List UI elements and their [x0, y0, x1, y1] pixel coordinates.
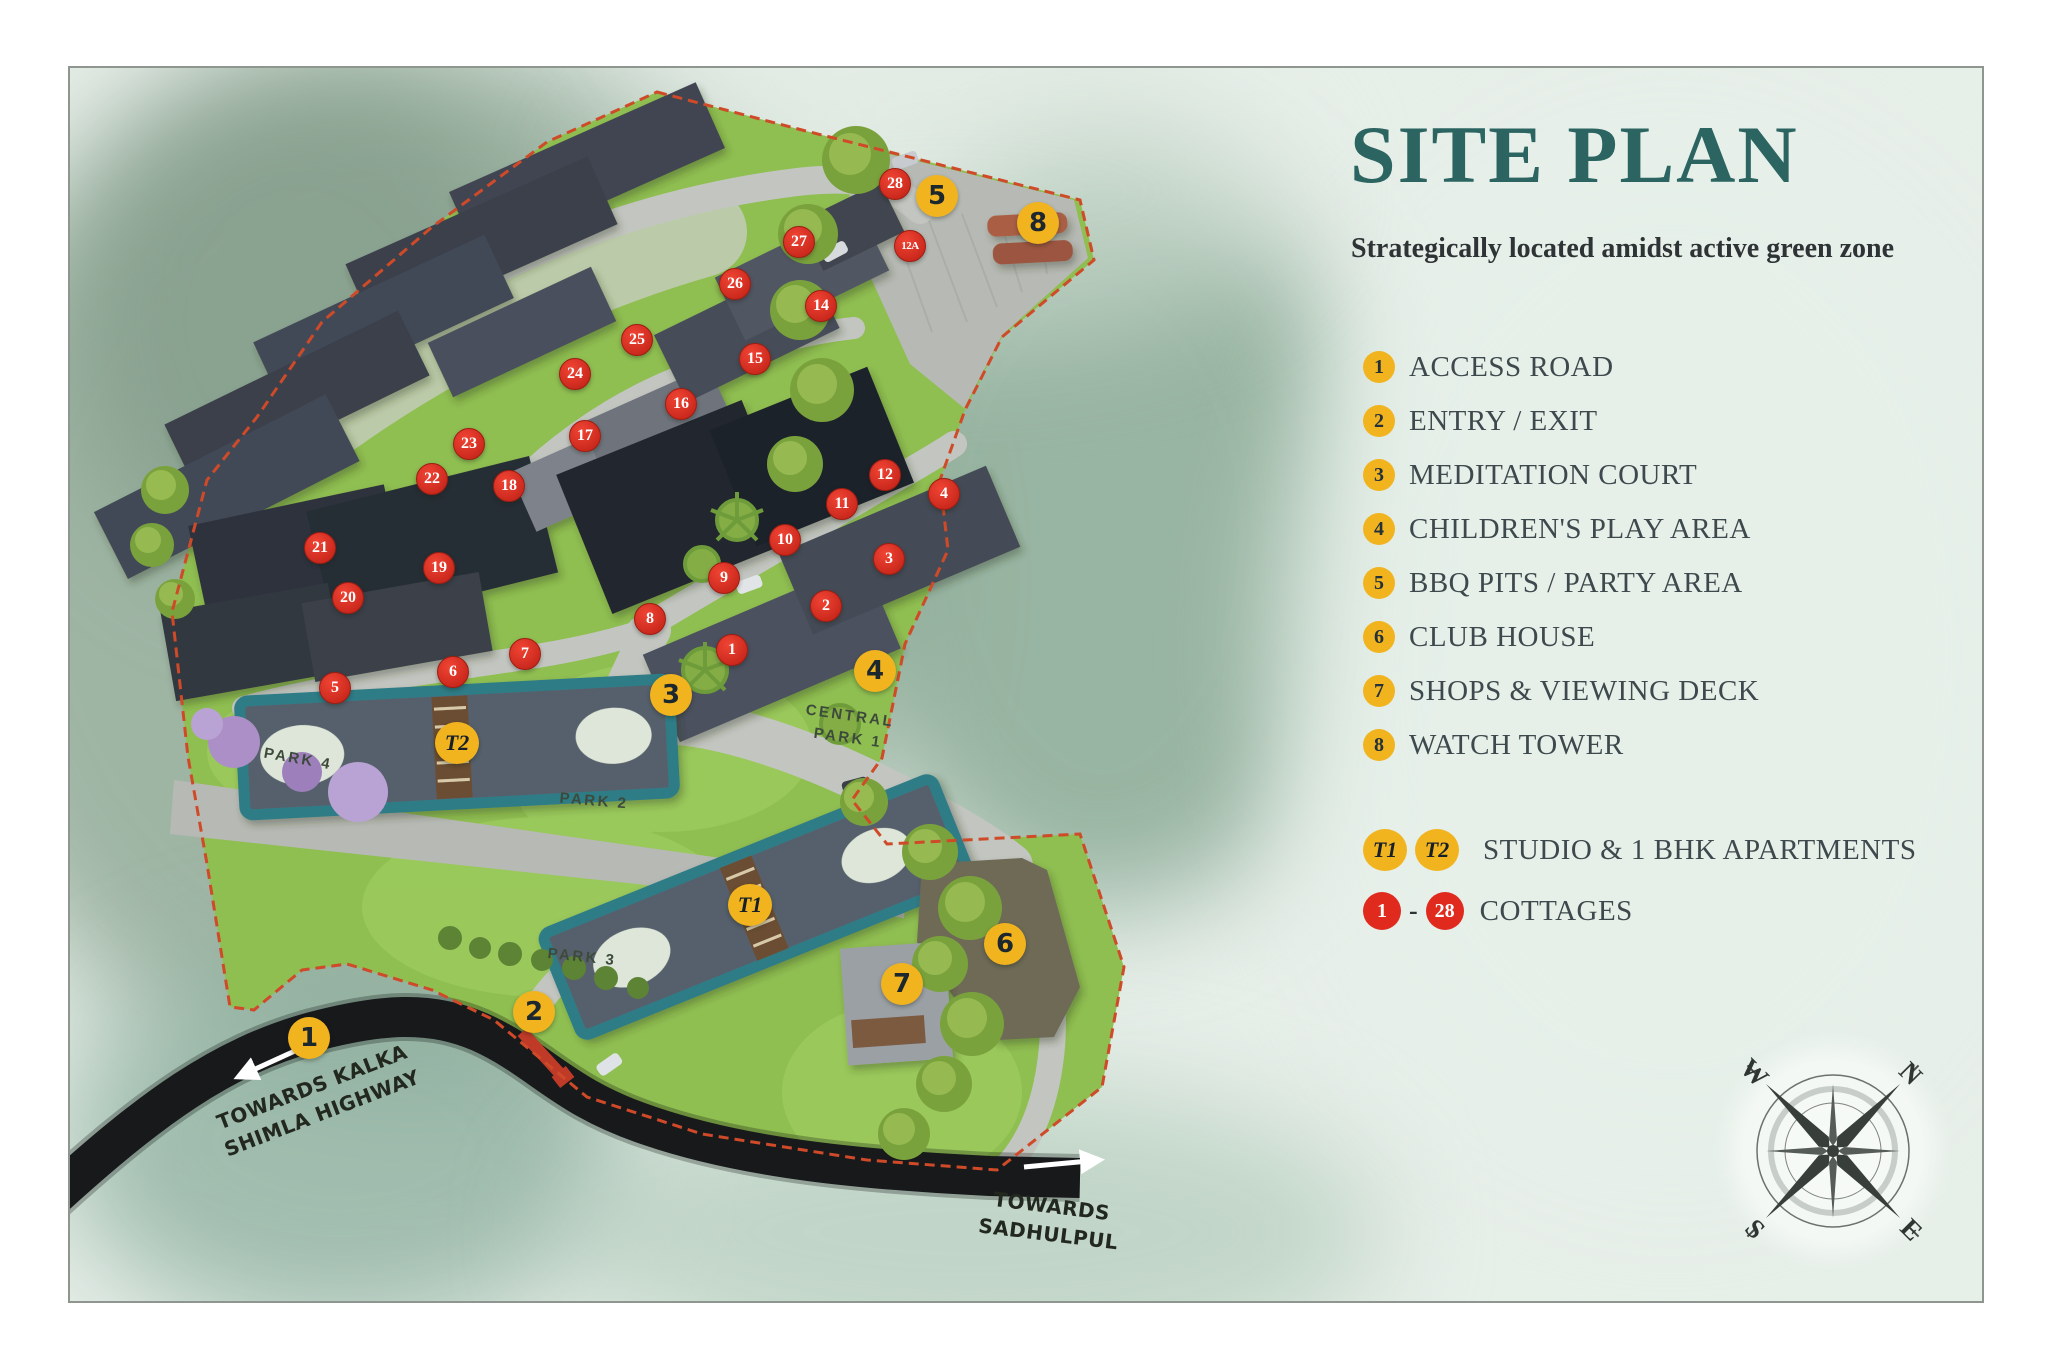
road-label-towards: TOWARDSSADHULPUL: [977, 1184, 1123, 1257]
cottage-marker-17: 17: [569, 420, 601, 452]
cottage-marker-27: 27: [783, 226, 815, 258]
cottage-marker-12A: 12A: [894, 230, 926, 262]
legend-apartments-row: T1 T2 STUDIO & 1 BHK APARTMENTS: [1363, 828, 1916, 872]
t1-badge: T1: [1363, 829, 1407, 871]
page-title: SITE PLAN: [1350, 114, 1799, 196]
amenity-marker-4: 4: [854, 650, 896, 692]
apartments-label: STUDIO & 1 BHK APARTMENTS: [1483, 834, 1916, 867]
t2-badge: T2: [1415, 829, 1459, 871]
cottage-marker-23: 23: [453, 428, 485, 460]
legend-item-7: 7SHOPS & VIEWING DECK: [1363, 664, 1759, 718]
legend-item-8: 8WATCH TOWER: [1363, 718, 1759, 772]
amenity-marker-3: 3: [650, 674, 692, 716]
cottage-marker-3: 3: [873, 543, 905, 575]
cottage-marker-18: 18: [493, 470, 525, 502]
cottage-marker-6: 6: [437, 656, 469, 688]
amenity-marker-7: 7: [881, 963, 923, 1005]
cottage-marker-28: 28: [879, 168, 911, 200]
tower-marker-t2: T2: [435, 722, 479, 764]
cottage-marker-2: 2: [810, 590, 842, 622]
cottage-marker-8: 8: [634, 603, 666, 635]
cottage-marker-21: 21: [304, 532, 336, 564]
legend-cottages-row: 1 - 28 COTTAGES: [1363, 890, 1633, 932]
legend-label-4: CHILDREN'S PLAY AREA: [1409, 513, 1751, 546]
page-subtitle: Strategically located amidst active gree…: [1351, 232, 1894, 266]
cottage-marker-9: 9: [708, 562, 740, 594]
legend-item-6: 6CLUB HOUSE: [1363, 610, 1759, 664]
legend-badge-2: 2: [1363, 405, 1395, 437]
legend-label-8: WATCH TOWER: [1409, 729, 1624, 762]
legend-label-3: MEDITATION COURT: [1409, 459, 1697, 492]
legend-badge-8: 8: [1363, 729, 1395, 761]
cottage-to-badge: 28: [1426, 892, 1464, 930]
amenity-marker-6: 6: [984, 923, 1026, 965]
cottage-marker-22: 22: [416, 463, 448, 495]
cottage-marker-11: 11: [826, 488, 858, 520]
cottage-marker-26: 26: [719, 268, 751, 300]
legend-badge-6: 6: [1363, 621, 1395, 653]
park-label-park-3: PARK 3: [547, 943, 618, 971]
legend-item-3: 3MEDITATION COURT: [1363, 448, 1759, 502]
amenity-marker-2: 2: [513, 991, 555, 1033]
legend-item-4: 4CHILDREN'S PLAY AREA: [1363, 502, 1759, 556]
park-label-park-4: PARK 4: [262, 743, 334, 776]
legend-badge-7: 7: [1363, 675, 1395, 707]
artwork-canvas: 12345678910111212A1415161718192021222324…: [68, 66, 1984, 1303]
amenity-marker-5: 5: [916, 175, 958, 217]
cottage-marker-10: 10: [769, 524, 801, 556]
cottages-label: COTTAGES: [1480, 895, 1633, 928]
legend-item-5: 5BBQ PITS / PARTY AREA: [1363, 556, 1759, 610]
cottage-range-dash: -: [1409, 896, 1418, 926]
amenity-marker-1: 1: [288, 1017, 330, 1059]
cottage-marker-25: 25: [621, 324, 653, 356]
legend-list: 1ACCESS ROAD2ENTRY / EXIT3MEDITATION COU…: [1363, 340, 1759, 772]
legend-label-1: ACCESS ROAD: [1409, 351, 1614, 384]
cottage-marker-1: 1: [716, 634, 748, 666]
cottage-marker-19: 19: [423, 552, 455, 584]
compass-rose: N E S W: [1708, 1026, 1958, 1276]
legend-label-2: ENTRY / EXIT: [1409, 405, 1598, 438]
legend-label-7: SHOPS & VIEWING DECK: [1409, 675, 1759, 708]
legend-label-5: BBQ PITS / PARTY AREA: [1409, 567, 1743, 600]
cottage-marker-7: 7: [509, 638, 541, 670]
cottage-from-badge: 1: [1363, 892, 1401, 930]
cottage-marker-12: 12: [869, 459, 901, 491]
tower-marker-t1: T1: [728, 884, 772, 926]
legend-badge-4: 4: [1363, 513, 1395, 545]
cottage-marker-16: 16: [665, 388, 697, 420]
legend-item-1: 1ACCESS ROAD: [1363, 340, 1759, 394]
legend-item-2: 2ENTRY / EXIT: [1363, 394, 1759, 448]
cottage-marker-4: 4: [928, 478, 960, 510]
cottage-marker-15: 15: [739, 343, 771, 375]
cottage-marker-24: 24: [559, 358, 591, 390]
amenity-marker-8: 8: [1017, 202, 1059, 244]
cottage-marker-14: 14: [805, 290, 837, 322]
cottage-marker-5: 5: [319, 672, 351, 704]
artwork-frame: 12345678910111212A1415161718192021222324…: [68, 66, 1984, 1303]
legend-badge-1: 1: [1363, 351, 1395, 383]
cottage-marker-20: 20: [332, 582, 364, 614]
park-label-park-2: PARK 2: [559, 788, 629, 815]
legend-badge-3: 3: [1363, 459, 1395, 491]
legend-label-6: CLUB HOUSE: [1409, 621, 1595, 654]
legend-badge-5: 5: [1363, 567, 1395, 599]
